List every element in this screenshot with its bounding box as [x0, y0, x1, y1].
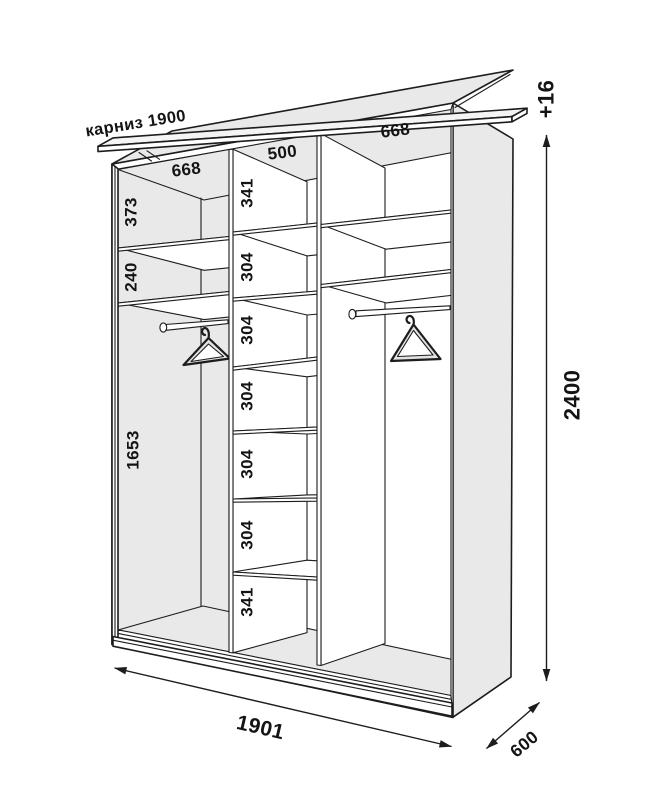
right-side-panel [451, 103, 513, 717]
label-left-height-3: 1653 [124, 430, 143, 469]
side-panel-front-edge [451, 103, 453, 717]
divider-front-edge [317, 134, 321, 666]
shelf-front-edge [233, 498, 317, 502]
left-wall-front-edge [112, 164, 118, 645]
label-center-height-7: 341 [238, 587, 257, 617]
label-center-height-5: 304 [238, 449, 257, 479]
label-section-width-left: 668 [170, 158, 202, 180]
label-center-height-2: 304 [238, 252, 257, 282]
divider-2 [317, 134, 385, 666]
label-cornice-extra-height: +16 [534, 80, 559, 119]
label-depth: 600 [506, 726, 542, 761]
label-center-height-4: 304 [238, 381, 257, 411]
label-left-height-2: 240 [122, 262, 141, 292]
label-section-width-right: 668 [379, 119, 411, 141]
label-left-height-1: 373 [122, 197, 141, 227]
label-total-width: 1901 [234, 711, 286, 744]
divider-side-face [321, 134, 385, 666]
divider-front-edge [229, 149, 233, 653]
side-panel-outer-face [453, 103, 513, 717]
drawing-canvas: карниз 1900 668 500 668 373 240 1653 341… [0, 0, 650, 800]
label-section-width-middle: 500 [266, 141, 298, 163]
label-center-height-6: 304 [238, 520, 257, 550]
label-total-height: 2400 [560, 370, 585, 421]
rail-flange [160, 323, 167, 332]
rail-flange [349, 309, 356, 319]
label-center-height-1: 341 [238, 178, 257, 208]
label-center-height-3: 304 [238, 315, 257, 345]
wardrobe-technical-drawing: карниз 1900 668 500 668 373 240 1653 341… [0, 0, 650, 800]
